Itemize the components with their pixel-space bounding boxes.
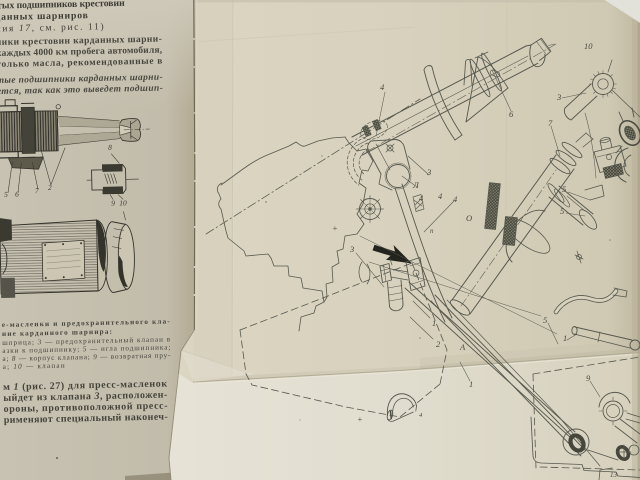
svg-text:9: 9 [111, 199, 115, 208]
svg-text:1: 1 [469, 379, 473, 389]
svg-text:5: 5 [543, 315, 547, 325]
svg-text:А: А [459, 342, 466, 352]
svg-text:6: 6 [15, 190, 19, 199]
svg-text:10: 10 [119, 198, 127, 207]
svg-text:+: + [332, 223, 338, 233]
svg-text:10: 10 [584, 41, 593, 51]
svg-text:данных шарниров: данных шарниров [0, 10, 88, 23]
svg-text:а; 10 — клапан: а; 10 — клапан [3, 362, 65, 371]
svg-text:5: 5 [4, 190, 8, 199]
svg-text:3: 3 [349, 244, 354, 254]
svg-text:8: 8 [108, 143, 112, 152]
svg-text:5: 5 [560, 206, 564, 216]
svg-text:3: 3 [426, 167, 431, 177]
svg-text:5: 5 [562, 184, 566, 194]
svg-text:+: + [357, 414, 363, 424]
svg-text:2: 2 [48, 183, 52, 192]
svg-text:1: 1 [432, 318, 436, 328]
svg-text:1: 1 [563, 333, 567, 343]
svg-text:О: О [466, 213, 472, 223]
svg-text:п: п [430, 227, 434, 235]
svg-text:7: 7 [35, 186, 39, 195]
svg-text:3: 3 [556, 92, 561, 102]
svg-text:13: 13 [610, 471, 618, 479]
